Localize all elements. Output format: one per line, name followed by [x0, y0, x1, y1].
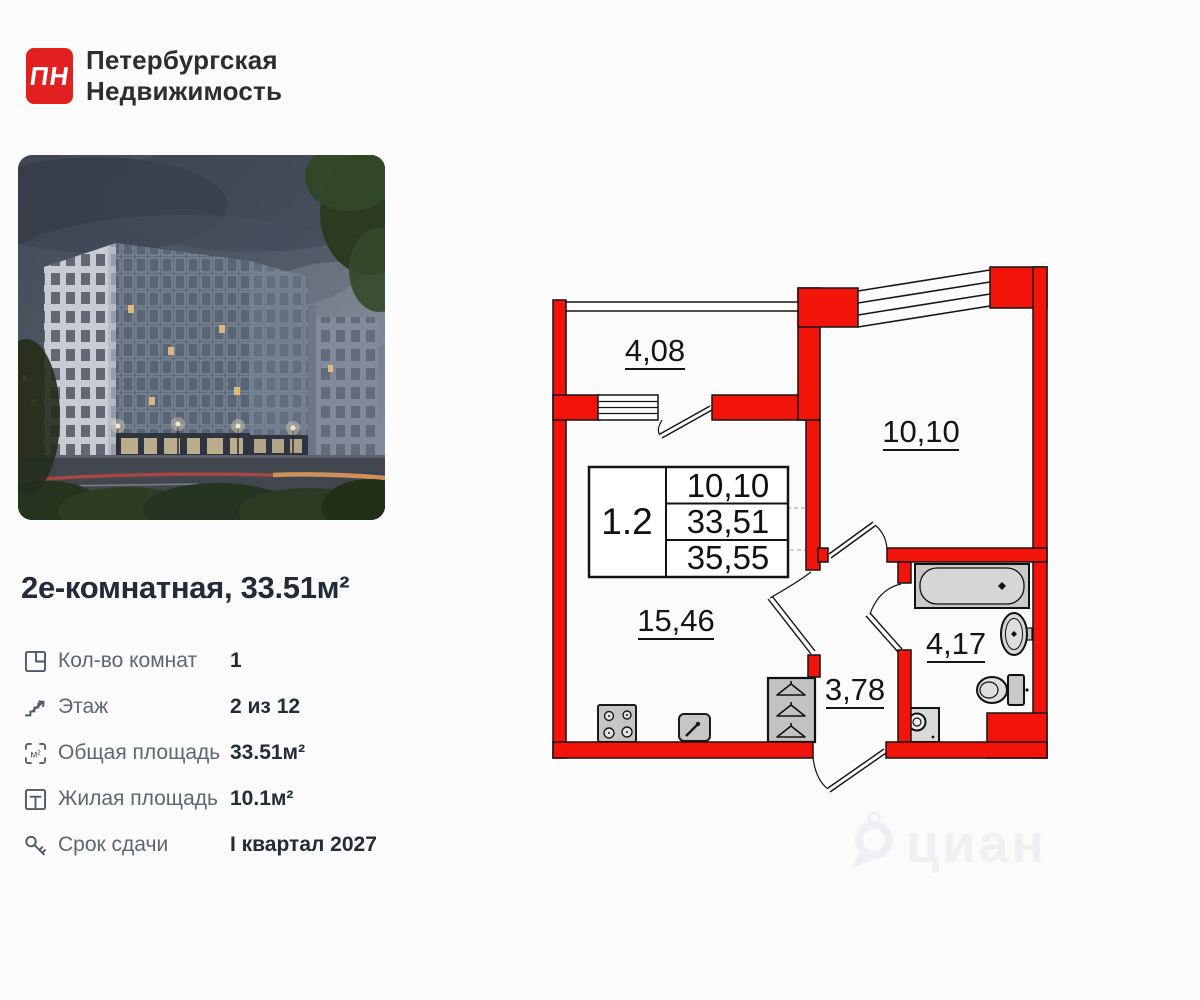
- brand-logo-letters: ПН: [28, 61, 72, 92]
- kitchen-hall-door: [768, 572, 815, 654]
- kitchen-area-label: 15,46: [637, 603, 715, 638]
- detail-row-living-area: Жилая площадь 10.1м²: [22, 776, 402, 822]
- unit-number: 1.2: [601, 501, 652, 542]
- bedroom-door: [829, 522, 887, 558]
- detail-label: Общая площадь: [58, 741, 220, 765]
- detail-label: Этаж: [58, 695, 108, 719]
- unit-table: 1.2 10,10 33,51 35,55: [589, 467, 788, 577]
- unit-total-area: 33,51: [687, 503, 770, 540]
- building-photo-art: [18, 155, 385, 520]
- brand-name: Петербургская Недвижимость: [86, 45, 282, 107]
- wardrobe-icon: [768, 678, 815, 742]
- brand-logo: ПН: [26, 48, 73, 104]
- hallway-area-label: 3,78: [825, 672, 885, 707]
- bathroom-door: [866, 584, 902, 652]
- unit-full-area: 35,55: [687, 539, 770, 576]
- svg-text:м²: м²: [30, 749, 41, 760]
- cian-pin-icon: [848, 810, 896, 878]
- detail-value: 10.1м²: [230, 787, 293, 811]
- loggia-window: [598, 395, 658, 420]
- page: { "brand": { "logo_letters": "ПН", "logo…: [0, 0, 1200, 1000]
- washbasin-icon: [1001, 613, 1032, 655]
- detail-label: Жилая площадь: [58, 787, 218, 811]
- detail-value: I квартал 2027: [230, 833, 377, 857]
- detail-label: Срок сдачи: [58, 833, 168, 857]
- detail-value: 33.51м²: [230, 741, 305, 765]
- kitchen-sink-icon: [679, 714, 710, 741]
- living-area-icon: [22, 786, 49, 813]
- watermark: циан: [848, 810, 1047, 878]
- loggia-glazing: [566, 302, 798, 311]
- detail-row-room-count: Кол-во комнат 1: [22, 638, 402, 684]
- floor-plan-drawing: 4,08 10,10 15,46 3,78 4,17 1.2 10,10 33,…: [540, 250, 1060, 798]
- loggia-door: [658, 406, 712, 438]
- watermark-text: циан: [906, 813, 1047, 875]
- total-area-icon: м²: [22, 740, 49, 767]
- stove-icon: [598, 705, 636, 742]
- floor-plan[interactable]: 4,08 10,10 15,46 3,78 4,17 1.2 10,10 33,…: [540, 250, 1060, 798]
- detail-row-completion: Срок сдачи I квартал 2027: [22, 822, 402, 868]
- detail-value: 1: [230, 649, 242, 673]
- unit-living-area: 10,10: [687, 467, 770, 504]
- detail-row-total-area: м² Общая площадь 33.51м²: [22, 730, 402, 776]
- detail-value: 2 из 12: [230, 695, 300, 719]
- detail-row-floor: Этаж 2 из 12: [22, 684, 402, 730]
- bathroom-area-label: 4,17: [926, 626, 986, 661]
- bathtub-icon: [915, 564, 1029, 608]
- building-photo[interactable]: [18, 155, 385, 520]
- entrance-door: [813, 749, 886, 792]
- toilet-icon: [977, 675, 1029, 705]
- brand-name-line1: Петербургская: [86, 45, 282, 76]
- listing-title: 2е-комнатная, 33.51м²: [21, 570, 349, 606]
- brand-name-line2: Недвижимость: [86, 76, 282, 107]
- room-count-icon: [22, 648, 49, 675]
- bedroom-area-label: 10,10: [882, 414, 960, 449]
- key-icon: [22, 832, 49, 859]
- loggia-area-label: 4,08: [625, 333, 685, 368]
- floor-stairs-icon: [22, 694, 49, 721]
- bedroom-window: [858, 270, 990, 327]
- details-list: Кол-во комнат 1 Этаж 2 из 12 м² Общая пл…: [22, 638, 402, 868]
- detail-label: Кол-во комнат: [58, 649, 197, 673]
